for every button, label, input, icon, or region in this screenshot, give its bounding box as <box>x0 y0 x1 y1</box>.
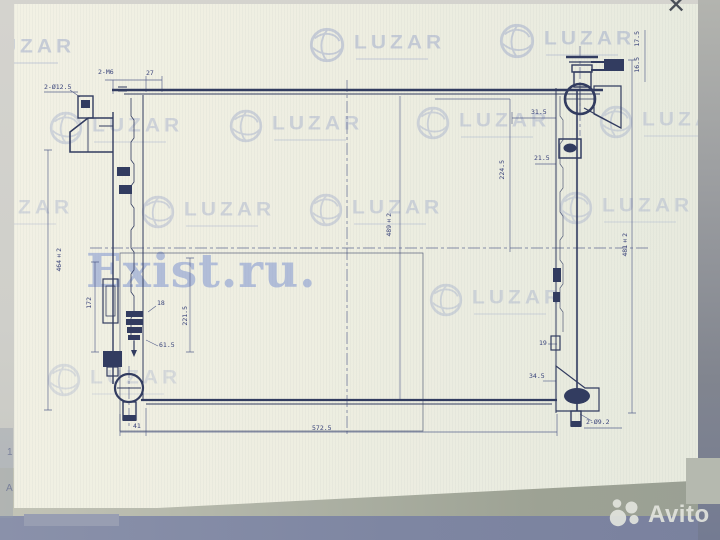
dimension-label: 18 <box>157 300 165 307</box>
dimension-label: 572.5 <box>312 425 332 432</box>
avito-wordmark: Avito <box>648 501 710 529</box>
dimension-label: 489±2 <box>386 213 393 237</box>
background-glyph: 1 <box>7 447 13 458</box>
screenshot-root: 1 A LUZAR LUZAR LUZAR LUZAR <box>0 0 720 540</box>
dimension-label: 224.5 <box>499 160 506 180</box>
dimension-label: 2-Ø9.2 <box>586 419 609 426</box>
avito-dots-icon <box>606 495 644 534</box>
dimension-label: 34.5 <box>529 373 545 380</box>
background-glyph: A <box>6 483 13 494</box>
close-icon[interactable]: ✕ <box>666 0 686 19</box>
background-rect <box>24 514 119 526</box>
dimension-label: 31.5 <box>531 109 547 116</box>
dimension-label: 2-Ø12.5 <box>44 84 71 91</box>
dimension-label: 481±2 <box>622 233 629 257</box>
dimension-label: 41 <box>133 423 141 430</box>
left-edge-strip <box>0 428 13 518</box>
dimension-label: 464±2 <box>56 248 63 272</box>
dimension-label: 16.5 <box>634 57 641 73</box>
dimension-label: 172 <box>86 297 93 309</box>
dimension-label: 19 <box>539 340 547 347</box>
dimension-label: 17.5 <box>634 31 641 47</box>
dimension-label: 21.5 <box>534 155 550 162</box>
product-image[interactable]: LUZAR LUZAR LUZAR LUZAR LUZAR LUZAR <box>14 4 700 508</box>
drawing-sheet: LUZAR LUZAR LUZAR LUZAR LUZAR LUZAR <box>14 4 700 508</box>
dimension-label: 221.5 <box>182 306 189 326</box>
dimension-label: 27 <box>146 70 154 77</box>
avito-logo: Avito <box>606 495 710 534</box>
dimension-label: 2-M6 <box>98 69 114 76</box>
dimension-label: 61.5 <box>159 342 175 349</box>
radiator-drawing <box>14 4 700 508</box>
